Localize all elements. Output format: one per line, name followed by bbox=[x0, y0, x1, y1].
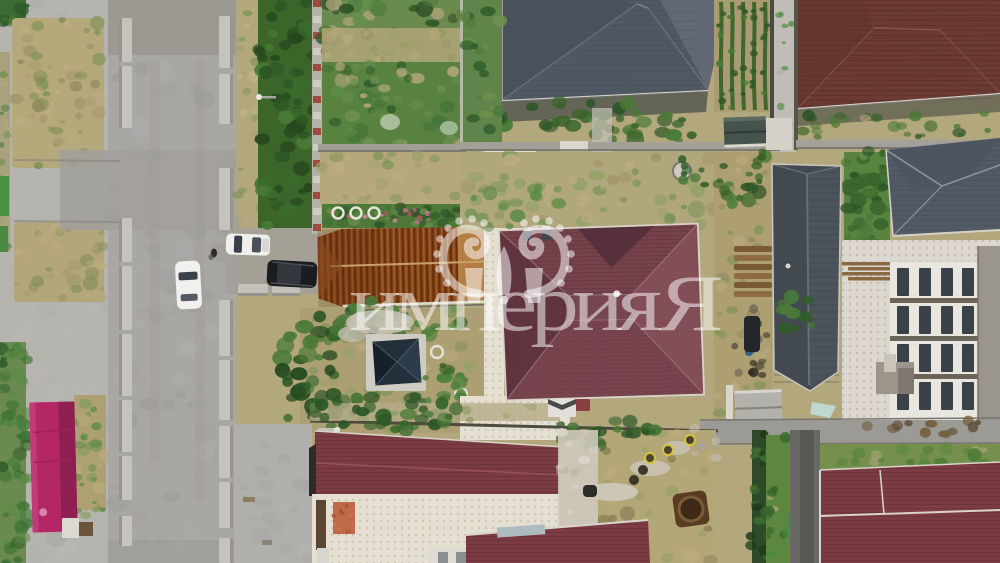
svg-text:империяЯ: империяЯ bbox=[349, 259, 721, 348]
